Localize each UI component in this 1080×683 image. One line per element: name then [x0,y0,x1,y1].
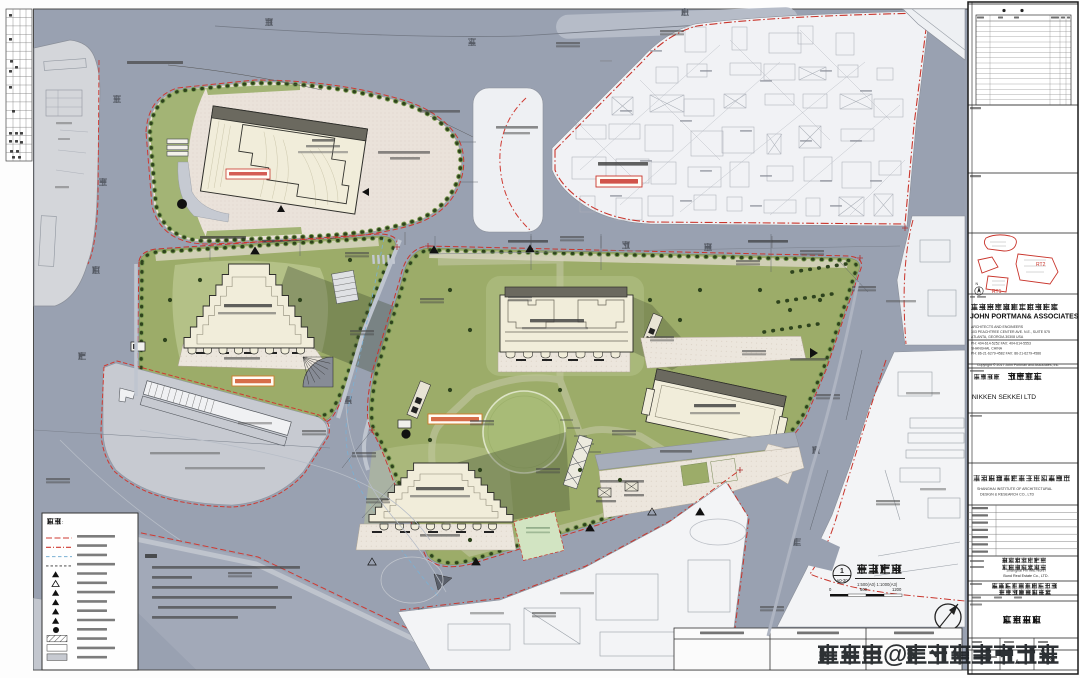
svg-text:@: @ [883,641,907,669]
svg-text:RT1: RT1 [992,289,1002,295]
svg-text:PH: 404-614-5252 FAX: 404-61: PH: 404-614-5252 FAX: 404-614-5553 [971,342,1031,346]
svg-text:SHANGHAI, CHINA: SHANGHAI, CHINA [971,347,1003,351]
svg-text:DESIGN & RESEARCH CO., L: DESIGN & RESEARCH CO., LTD [980,493,1034,497]
svg-text:1200: 1200 [892,587,902,592]
svg-text:ARCHITECTS AND ENGINEERS: ARCHITECTS AND ENGINEERS [971,325,1024,329]
svg-text:JOHN PORTMAN& ASSOCIATES: JOHN PORTMAN& ASSOCIATES [970,314,1079,321]
svg-text:PH: 86-21-6279-4582 FAX: 86-: PH: 86-21-6279-4582 FAX: 86-21-6279-4586 [971,352,1041,356]
svg-text:ATLANTA, GEORGIA 30308 USA: ATLANTA, GEORGIA 30308 USA [971,335,1024,339]
svg-text:Bund Real Estate Co., LTD.: Bund Real Estate Co., LTD. [1003,574,1048,578]
svg-text:600: 600 [860,587,868,592]
svg-text:NIKKEN SEKKEI LTD: NIKKEN SEKKEI LTD [972,394,1036,401]
svg-text:1: 1 [840,568,844,575]
svg-text:Copyright © 2017 John Portma: Copyright © 2017 John Portman and Associ… [977,363,1059,367]
svg-text:SHANGHAI INSTITUTE OF AR: SHANGHAI INSTITUTE OF ARCHITECTURAL [977,487,1052,491]
svg-text:A0-30: A0-30 [836,578,848,583]
svg-text:303 PEACHTREE CENTER AVE. N.E.: 303 PEACHTREE CENTER AVE. N.E., SUITE 57… [971,330,1050,334]
svg-text:RT2: RT2 [1036,262,1046,268]
svg-text:N: N [976,282,979,286]
svg-text:Shanghai HITIME North: Shanghai HITIME North [1006,569,1045,573]
